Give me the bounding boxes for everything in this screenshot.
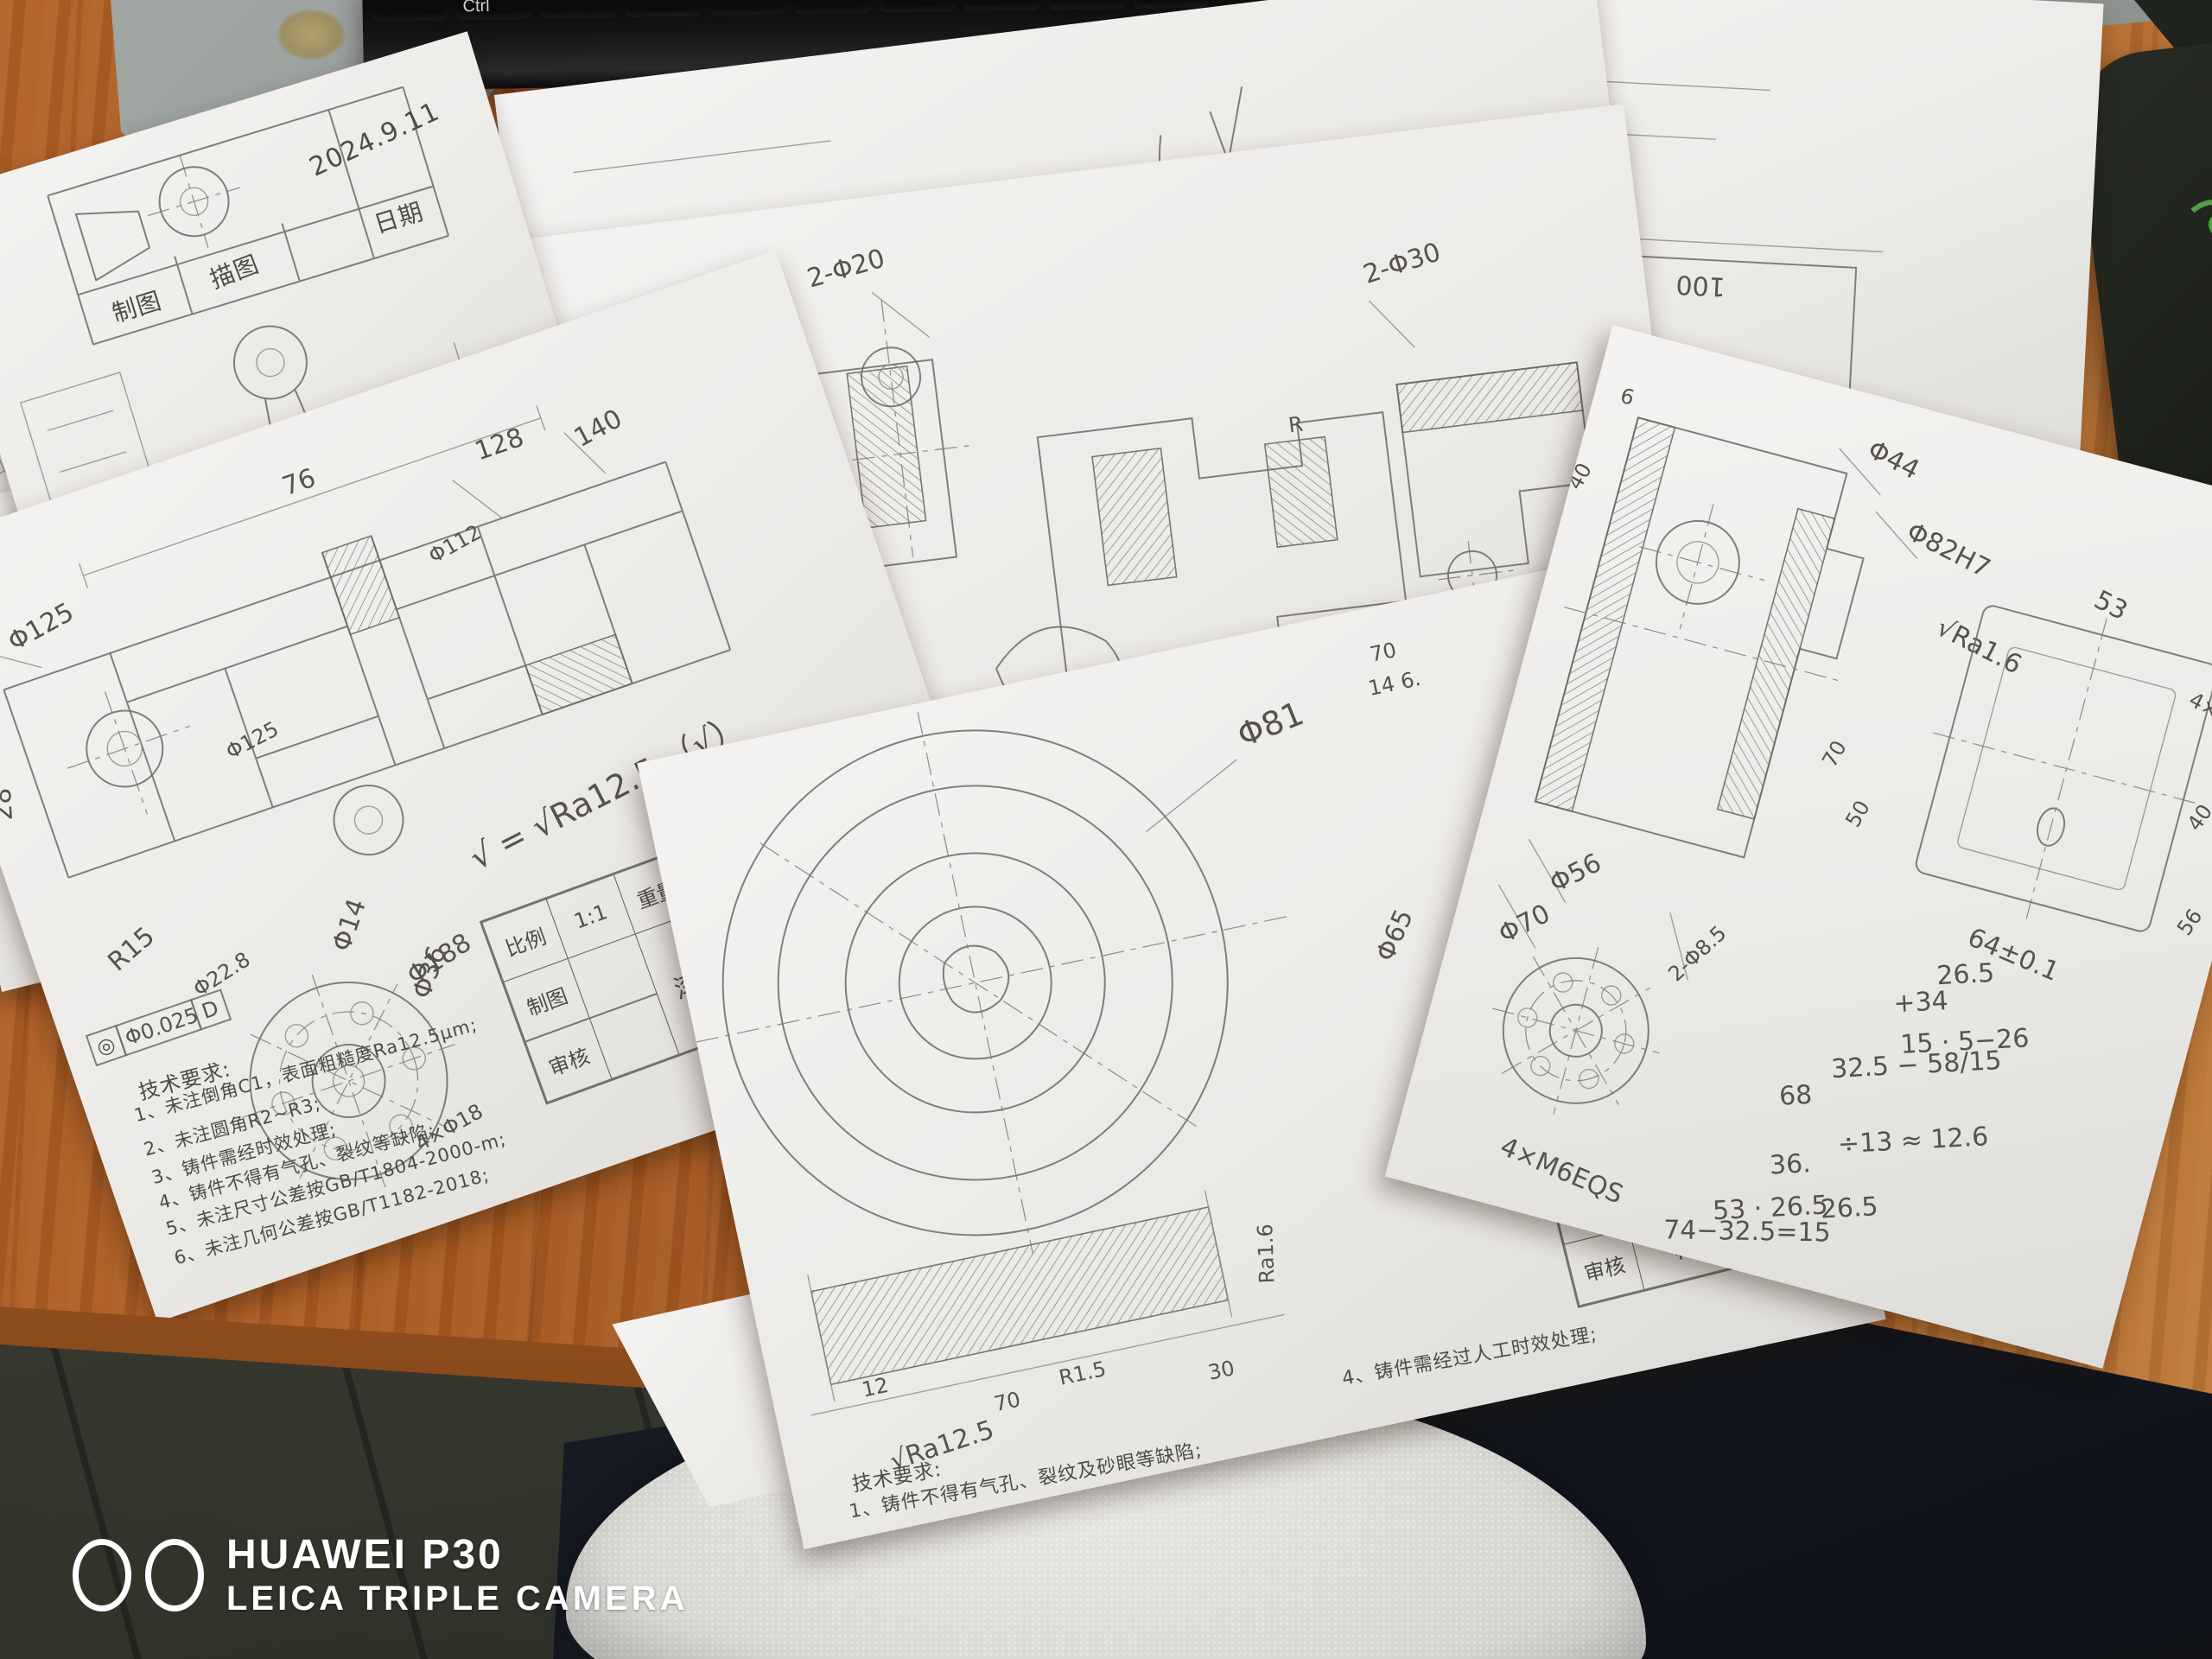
svg-text:36.: 36. (1769, 1148, 1811, 1180)
svg-text:74−32.5=15: 74−32.5=15 (1663, 1215, 1831, 1248)
dim-label: Φ14 (327, 895, 372, 956)
keyboard-key (879, 0, 956, 13)
svg-text:32.5 − 58/15: 32.5 − 58/15 (1830, 1046, 2002, 1084)
dim-label: Φ125 (3, 597, 79, 658)
dim-label: Φ125 (222, 716, 283, 764)
dim-label: 4×M9 (2185, 688, 2212, 737)
dim-label: 2-Φ8.5 (1663, 921, 1731, 987)
svg-text:÷13 ≈ 12.6: ÷13 ≈ 12.6 (1837, 1122, 1989, 1160)
keyboard-key-ctrl: Ctrl (455, 0, 532, 21)
watermark-text: HUAWEI P30 LEICA TRIPLE CAMERA (226, 1531, 689, 1618)
desk-photo-scene: Ctrl (0, 0, 2212, 1659)
watermark-camera: LEICA TRIPLE CAMERA (226, 1579, 689, 1618)
dim-label: Φ44 (1863, 435, 1924, 486)
pencil-calculations: 26.5 +34 15 · 5−26 32.5 − 58/15 68 ÷13 ≈… (1656, 893, 2051, 1324)
tol-symbol: ◎ (93, 1032, 118, 1060)
dim-label: 128 (471, 423, 528, 467)
dim-label: 6 (1618, 384, 1637, 410)
dim-label: 53 (2089, 585, 2133, 627)
dim-label: R15 (102, 921, 161, 977)
keyboard-key (794, 0, 871, 15)
svg-text:+34: +34 (1892, 986, 1948, 1019)
dim-label: Ra1.6 (1253, 1224, 1279, 1284)
geo-tolerance-frame: ◎ Φ0.025 D (86, 990, 231, 1065)
dim-label: Φ65 (1370, 905, 1420, 966)
dim-label: 70 (1368, 638, 1399, 667)
leica-double-circle-icon (73, 1539, 204, 1611)
dim-label: 28 (0, 787, 19, 823)
dim-label: 70 (992, 1387, 1023, 1416)
dim-label: 2-Φ30 (1360, 237, 1445, 290)
keyboard-key (709, 0, 786, 16)
dim-label: 12 (860, 1373, 891, 1402)
dim-label: R (1287, 412, 1305, 438)
dim-label: 40 (2183, 800, 2212, 836)
dim-label: Φ56 (1545, 848, 1606, 899)
circle-icon (73, 1539, 131, 1611)
keyboard-key (963, 0, 1040, 11)
keyboard-key (625, 0, 702, 17)
dim-label: 56 (2172, 905, 2207, 940)
dim-label: 2-Φ20 (804, 244, 888, 295)
circle-icon (145, 1539, 204, 1611)
dim-label: 14 6. (1366, 666, 1423, 701)
dim-label: 4×M6EQS (1496, 1132, 1627, 1211)
keyboard-key (1133, 0, 1210, 9)
dim-label: Φ82H7 (1902, 517, 1995, 584)
keyboard-key (1048, 0, 1125, 10)
dim-label: 70 (1817, 736, 1852, 771)
keyboard-keys: Ctrl (371, 0, 1210, 22)
dim-label: Φ81 (1232, 694, 1309, 754)
dim-label: 50 (1840, 797, 1875, 831)
camera-watermark: HUAWEI P30 LEICA TRIPLE CAMERA (73, 1531, 689, 1618)
dim-label: Φ70 (1494, 899, 1555, 950)
svg-text:68: 68 (1778, 1080, 1813, 1112)
dim-label: 30 (1206, 1356, 1237, 1385)
keyboard-key (371, 0, 448, 22)
plate-smudge (276, 9, 346, 60)
surface-note: √Ra1.6 (1931, 613, 2026, 681)
dim-label: Φ112 (424, 520, 485, 569)
keyboard-key (540, 0, 617, 19)
dim-label: 100 (1675, 269, 1726, 302)
watermark-device: HUAWEI P30 (226, 1531, 689, 1579)
